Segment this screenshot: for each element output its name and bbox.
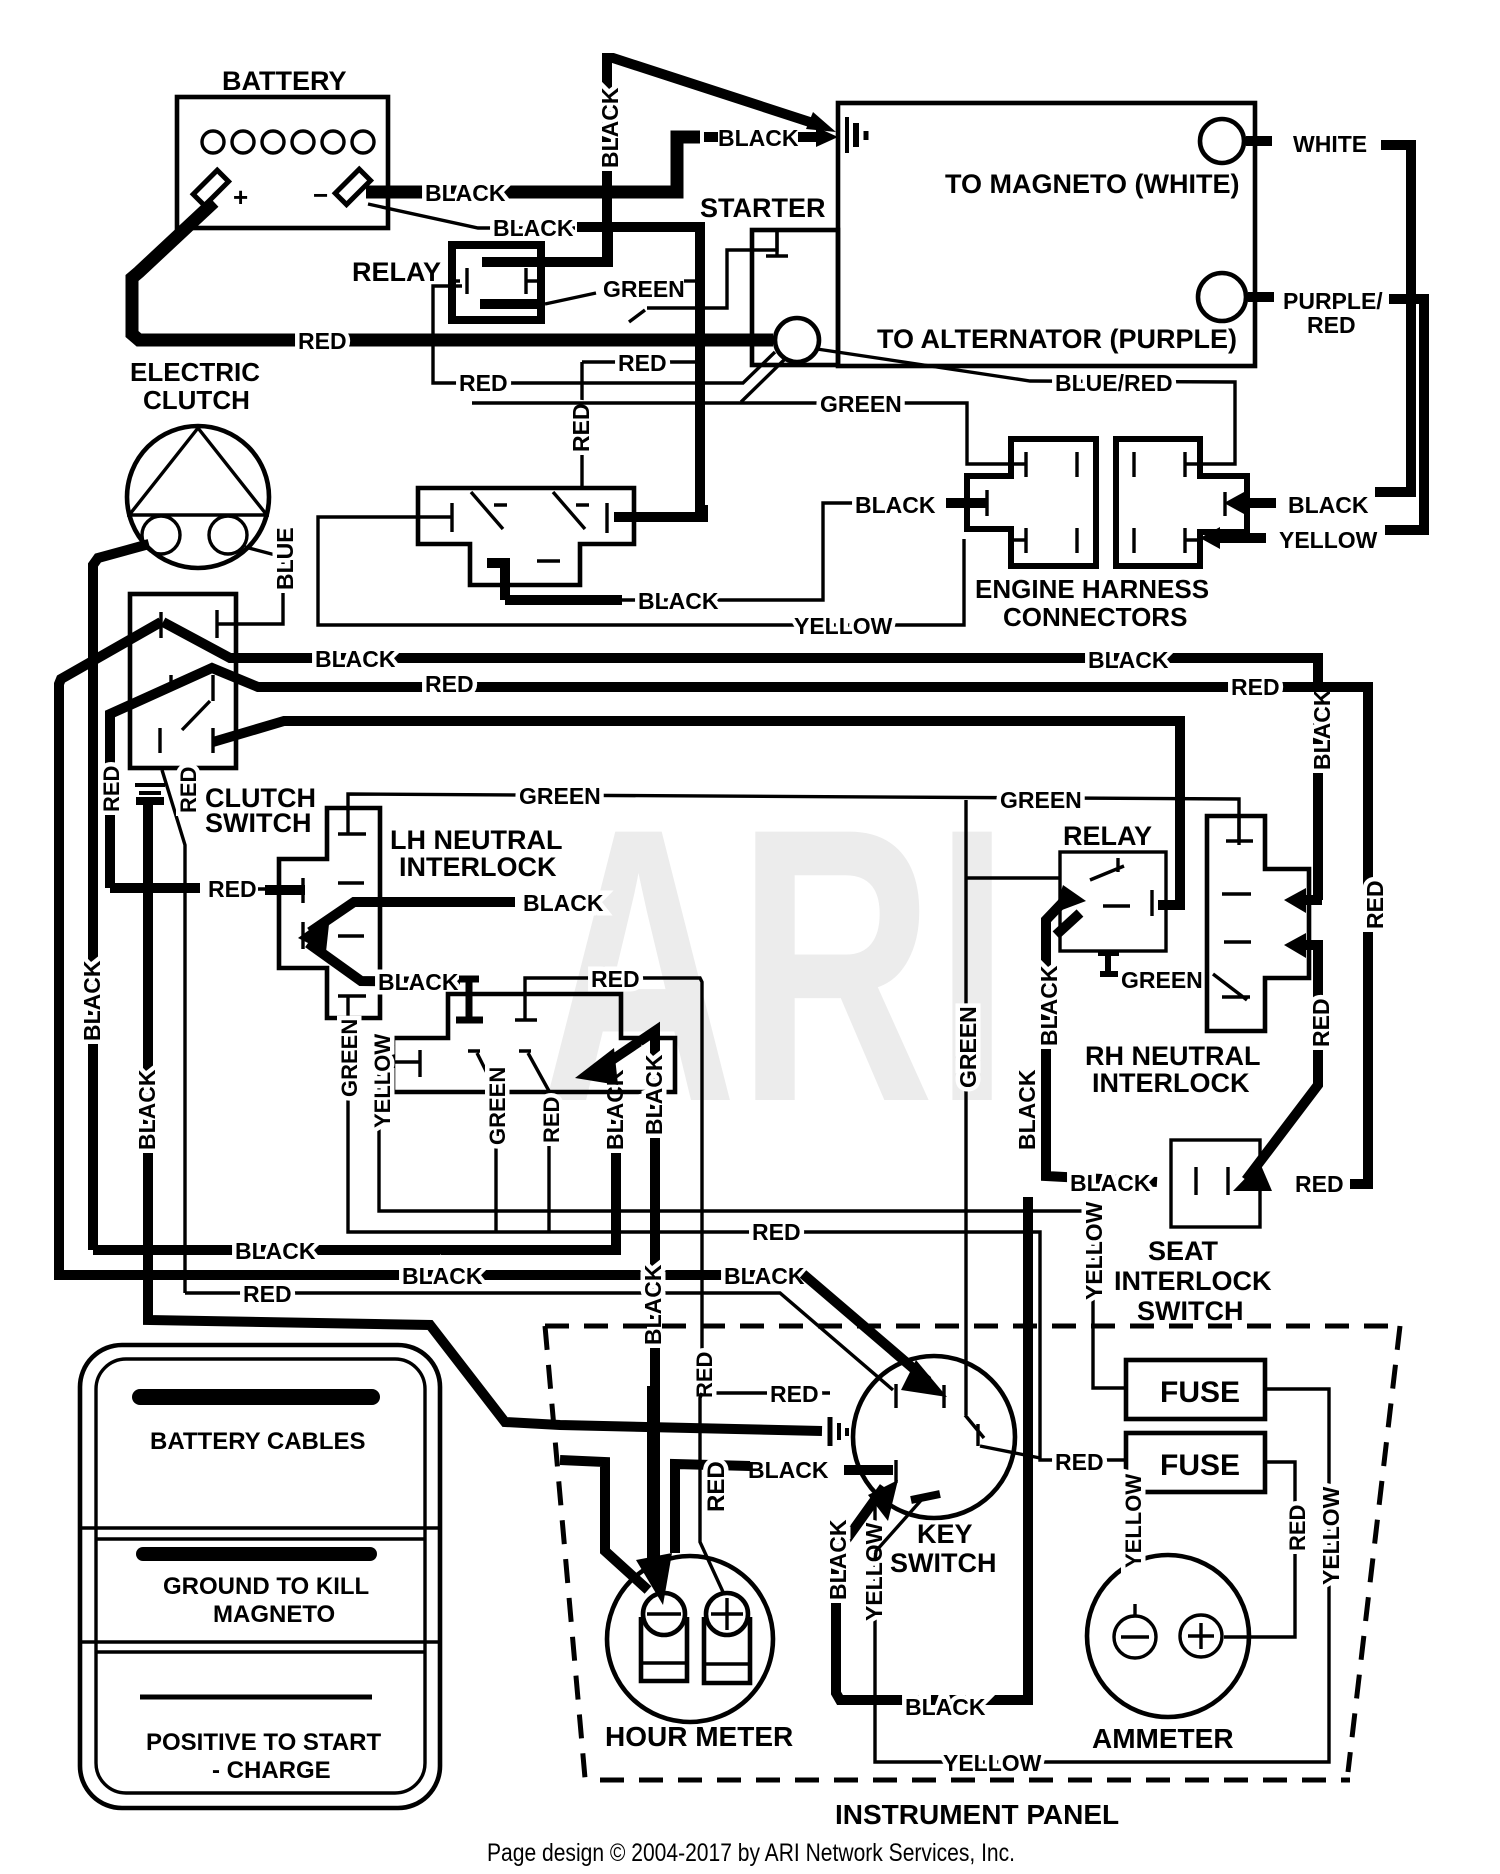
svg-text:BLACK: BLACK [315,646,396,672]
svg-text:TO MAGNETO (WHITE): TO MAGNETO (WHITE) [945,169,1239,199]
svg-text:GREEN: GREEN [955,1006,981,1088]
svg-text:GREEN: GREEN [519,783,601,809]
svg-text:PURPLE/: PURPLE/ [1283,288,1383,314]
svg-text:SEAT: SEAT [1148,1236,1219,1266]
svg-text:STARTER: STARTER [700,193,826,223]
svg-text:YELLOW: YELLOW [861,1522,887,1621]
svg-text:RED: RED [243,1281,292,1307]
svg-text:BLACK: BLACK [855,492,936,518]
svg-text:YELLOW: YELLOW [943,1750,1042,1776]
svg-text:MAGNETO: MAGNETO [213,1601,335,1628]
svg-text:YELLOW: YELLOW [370,1034,395,1128]
svg-text:RELAY: RELAY [352,257,441,287]
svg-text:RED: RED [752,1219,801,1245]
svg-text:BLACK: BLACK [905,1694,986,1720]
svg-text:YELLOW: YELLOW [794,613,893,639]
svg-text:BLACK: BLACK [425,180,506,206]
svg-text:BLACK: BLACK [134,1069,160,1150]
svg-text:BLACK: BLACK [718,125,799,151]
svg-text:RED: RED [1285,1505,1310,1551]
svg-text:INTERLOCK: INTERLOCK [1114,1266,1272,1296]
svg-text:BLACK: BLACK [1309,689,1335,770]
svg-text:BLACK: BLACK [640,1264,666,1345]
svg-text:RED: RED [425,671,474,697]
svg-text:BLACK: BLACK [638,588,719,614]
svg-text:BLACK: BLACK [1070,1170,1151,1196]
svg-text:FUSE: FUSE [1160,1449,1240,1482]
svg-text:FUSE: FUSE [1160,1376,1240,1409]
svg-text:RED: RED [539,1097,564,1143]
svg-text:−: − [313,180,328,210]
svg-text:BLACK: BLACK [523,890,604,916]
svg-text:GROUND TO KILL: GROUND TO KILL [163,1573,369,1600]
svg-text:RED: RED [618,350,667,376]
svg-text:RED: RED [459,370,508,396]
svg-text:GREEN: GREEN [337,1019,362,1097]
svg-text:ENGINE HARNESS: ENGINE HARNESS [975,574,1209,604]
svg-text:SWITCH: SWITCH [205,808,311,838]
svg-text:SWITCH: SWITCH [890,1548,996,1578]
svg-text:RED: RED [99,766,124,812]
svg-text:BLACK: BLACK [1036,965,1062,1046]
svg-text:CONNECTORS: CONNECTORS [1003,602,1187,632]
svg-text:BLACK: BLACK [79,960,105,1041]
svg-text:BATTERY: BATTERY [222,66,347,96]
svg-text:BLACK: BLACK [235,1238,316,1264]
svg-text:RED: RED [208,876,257,902]
svg-text:INTERLOCK: INTERLOCK [399,852,557,882]
svg-text:YELLOW: YELLOW [1279,527,1378,553]
svg-text:- CHARGE: - CHARGE [212,1757,331,1784]
svg-text:RED: RED [1307,312,1356,338]
svg-text:SWITCH: SWITCH [1137,1296,1243,1326]
svg-text:ELECTRIC: ELECTRIC [130,357,260,387]
svg-text:INTERLOCK: INTERLOCK [1092,1068,1250,1098]
svg-text:GREEN: GREEN [1121,967,1203,993]
svg-text:BLACK: BLACK [748,1457,829,1483]
svg-text:INSTRUMENT PANEL: INSTRUMENT PANEL [835,1799,1119,1830]
svg-text:RED: RED [1295,1171,1344,1197]
svg-text:LH NEUTRAL: LH NEUTRAL [390,825,562,855]
svg-text:BLACK: BLACK [493,215,574,241]
svg-text:BLACK: BLACK [825,1519,851,1600]
svg-text:POSITIVE TO START: POSITIVE TO START [146,1729,381,1756]
svg-text:HOUR METER: HOUR METER [605,1721,793,1752]
svg-text:RED: RED [770,1381,819,1407]
svg-text:GREEN: GREEN [1000,787,1082,813]
svg-text:BLACK: BLACK [402,1263,483,1289]
svg-text:WHITE: WHITE [1293,131,1367,157]
svg-text:RED: RED [1308,998,1334,1047]
svg-text:KEY: KEY [917,1519,973,1549]
svg-text:TO ALTERNATOR (PURPLE): TO ALTERNATOR (PURPLE) [877,324,1237,354]
svg-text:BLACK: BLACK [378,969,459,995]
svg-text:YELLOW: YELLOW [1121,1474,1146,1568]
svg-text:CLUTCH: CLUTCH [143,385,250,415]
svg-text:RH NEUTRAL: RH NEUTRAL [1085,1041,1261,1071]
svg-text:RED: RED [1362,880,1388,929]
svg-text:RED: RED [591,966,640,992]
svg-text:RED: RED [568,403,594,452]
svg-text:RED: RED [692,1352,717,1398]
svg-text:YELLOW: YELLOW [1081,1201,1107,1300]
svg-text:BATTERY CABLES: BATTERY CABLES [150,1428,366,1455]
svg-text:+: + [233,182,248,212]
svg-text:RELAY: RELAY [1063,821,1152,851]
svg-text:RED: RED [703,1461,730,1512]
svg-text:RED: RED [1055,1449,1104,1475]
svg-text:GREEN: GREEN [603,276,685,302]
svg-text:AMMETER: AMMETER [1092,1723,1234,1754]
svg-text:BLACK: BLACK [1014,1069,1040,1150]
svg-text:BLUE/RED: BLUE/RED [1055,370,1173,396]
svg-text:Page design © 2004-2017 by ARI: Page design © 2004-2017 by ARI Network S… [487,1839,1015,1867]
svg-text:GREEN: GREEN [485,1067,510,1145]
svg-text:BLACK: BLACK [641,1054,667,1135]
svg-text:RED: RED [176,767,201,813]
svg-text:RED: RED [1231,674,1280,700]
svg-text:BLUE: BLUE [272,527,298,590]
svg-text:BLACK: BLACK [724,1263,805,1289]
svg-text:BLACK: BLACK [1288,492,1369,518]
svg-text:BLACK: BLACK [1088,647,1169,673]
svg-text:YELLOW: YELLOW [1318,1486,1344,1585]
svg-text:GREEN: GREEN [820,391,902,417]
svg-text:RED: RED [298,328,347,354]
svg-text:BLACK: BLACK [597,87,623,168]
